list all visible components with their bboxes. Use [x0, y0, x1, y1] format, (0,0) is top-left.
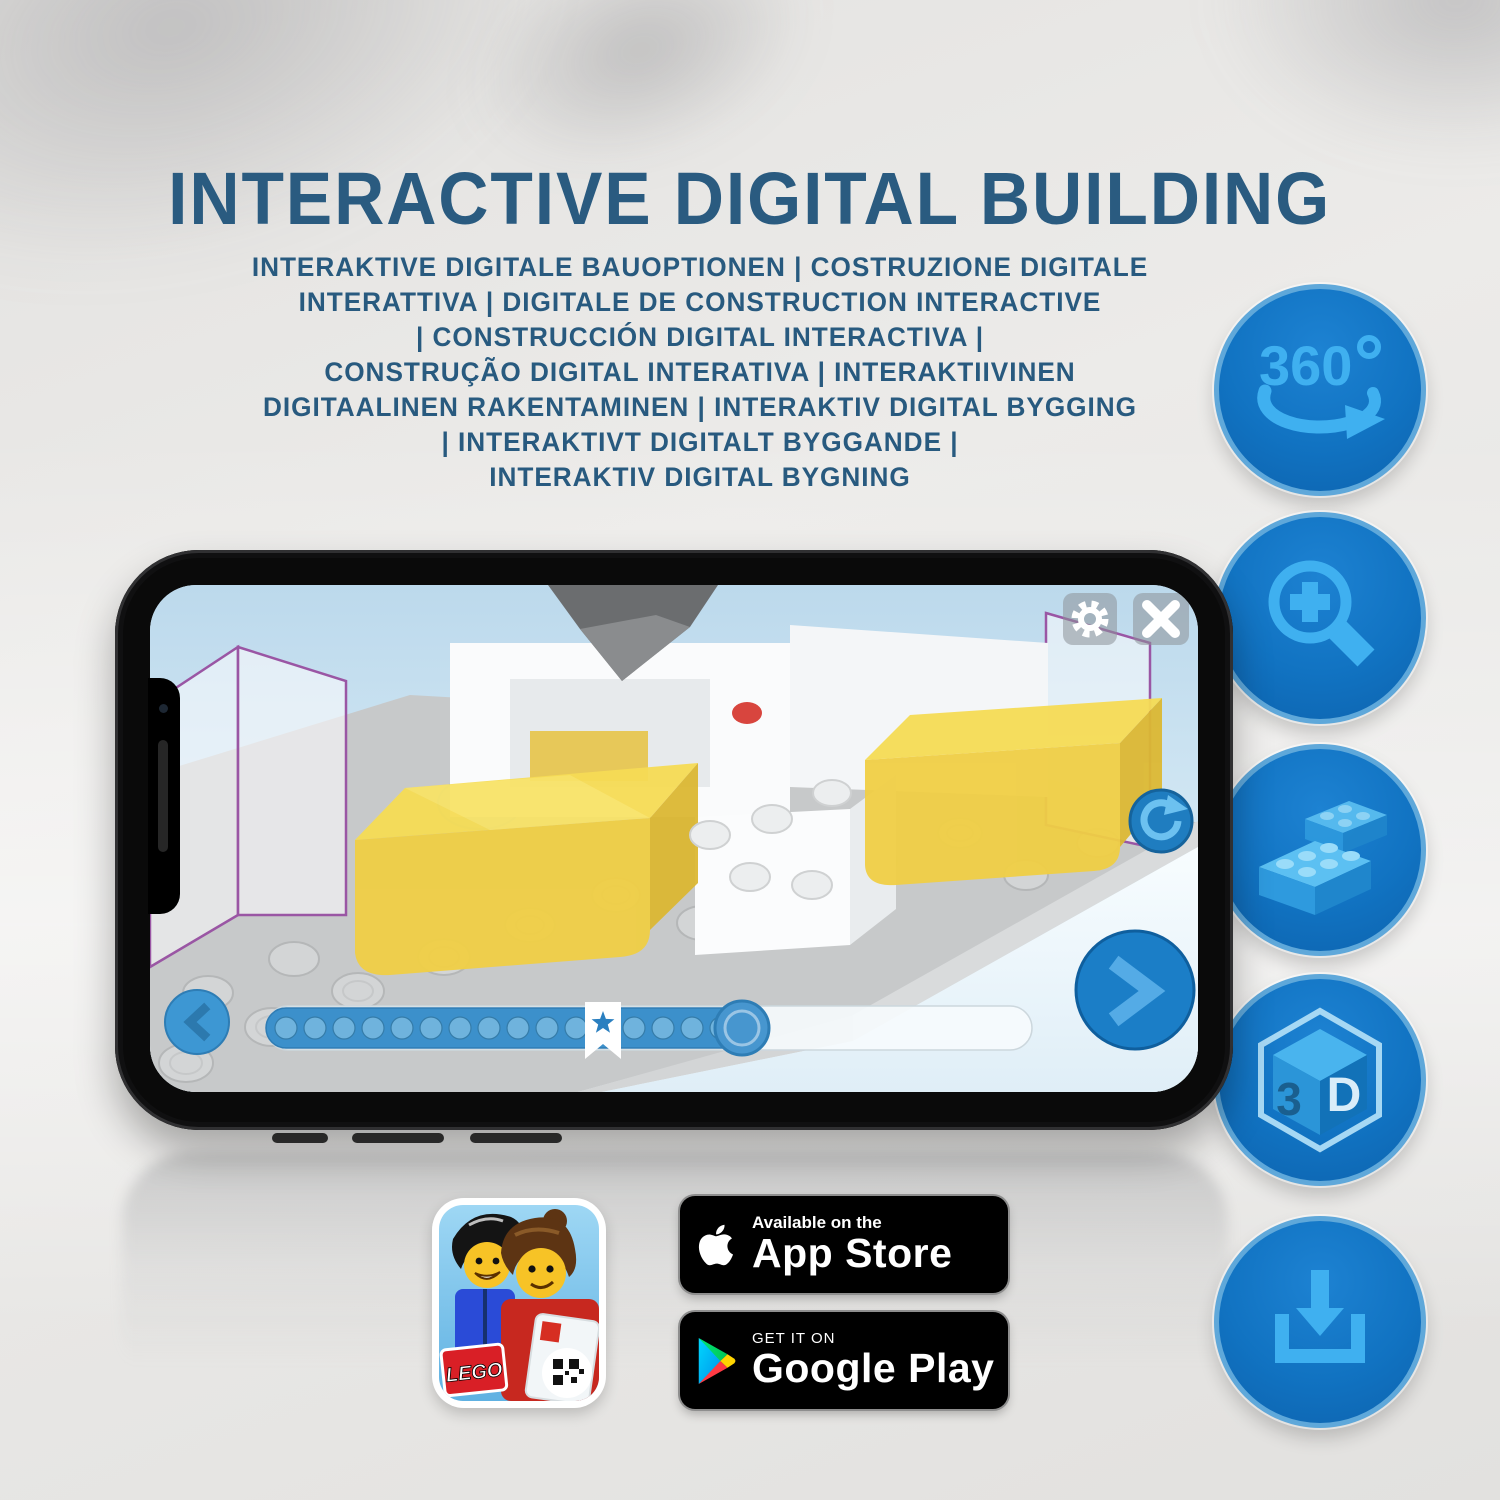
app-store-badge[interactable]: Available on the App Store [680, 1196, 1008, 1293]
feature-3d-view: 3 D [1214, 974, 1426, 1186]
subtitle-line: INTERAKTIV DIGITAL BYGNING [21, 460, 1379, 495]
subtitle-line: INTERATTIVA | DIGITALE DE CONSTRUCTION I… [21, 285, 1379, 320]
progress-thumb[interactable] [715, 1001, 769, 1055]
bricks-icon [1245, 775, 1395, 925]
subtitle-line: | INTERAKTIVT DIGITALT BYGGANDE | [21, 425, 1379, 460]
app-screen [150, 585, 1198, 1092]
cube-face-3: 3 [1276, 1073, 1302, 1125]
google-play-label: Google Play [752, 1347, 994, 1390]
phone-side-button [352, 1133, 444, 1143]
red-accent-brick [732, 702, 762, 724]
poster: INTERACTIVE DIGITAL BUILDING INTERAKTIVE… [0, 0, 1500, 1500]
360-label: 360 [1259, 334, 1352, 397]
phone-side-button [272, 1133, 328, 1143]
download-icon [1250, 1252, 1390, 1392]
google-play-badge[interactable]: GET IT ON Google Play [680, 1312, 1008, 1409]
3d-cube-icon: 3 D [1245, 1005, 1395, 1155]
speaker-slit [158, 740, 168, 852]
yellow-bricks-right [865, 698, 1162, 885]
settings-button[interactable] [1063, 593, 1117, 645]
apple-logo-icon [680, 1214, 752, 1276]
feature-bricks [1214, 744, 1426, 956]
background-texture [1180, 0, 1500, 180]
close-button[interactable] [1133, 593, 1189, 645]
cube-face-d: D [1327, 1069, 1362, 1122]
feature-zoom [1214, 512, 1426, 724]
lego-logo: LEGO [441, 1344, 507, 1396]
back-button[interactable] [165, 990, 229, 1054]
degree-symbol-icon [1360, 338, 1378, 356]
subtitle-line: INTERAKTIVE DIGITALE BAUOPTIONEN | COSTR… [21, 250, 1379, 285]
phone-mockup [115, 550, 1233, 1130]
phone-reflection [122, 1152, 1228, 1402]
feature-download [1214, 1216, 1426, 1428]
yellow-bricks-left [355, 763, 698, 975]
subtitle-line: | CONSTRUCCIÓN DIGITAL INTERACTIVA | [21, 320, 1379, 355]
subtitle-line: DIGITAALINEN RAKENTAMINEN | INTERAKTIV D… [21, 390, 1379, 425]
app-store-label: App Store [752, 1232, 952, 1275]
next-button[interactable] [1076, 931, 1194, 1049]
phone-notch [148, 678, 180, 914]
feature-360-rotation: 360 [1214, 284, 1426, 496]
lego-app-icon: LEGO [432, 1198, 606, 1408]
progress-dots [275, 1017, 761, 1039]
zoom-in-icon [1250, 548, 1390, 688]
subtitle-block: INTERAKTIVE DIGITALE BAUOPTIONEN | COSTR… [0, 250, 1400, 495]
camera-dot [159, 704, 168, 713]
rotate-button[interactable] [1130, 790, 1192, 852]
phone-side-button [470, 1133, 562, 1143]
subtitle-line: CONSTRUÇÃO DIGITAL INTERATIVA | INTERAKT… [21, 355, 1379, 390]
google-play-logo-icon [680, 1335, 752, 1387]
girl-face [516, 1248, 566, 1298]
360-rotation-icon: 360 [1245, 315, 1395, 465]
page-title: INTERACTIVE DIGITAL BUILDING [0, 156, 1500, 241]
